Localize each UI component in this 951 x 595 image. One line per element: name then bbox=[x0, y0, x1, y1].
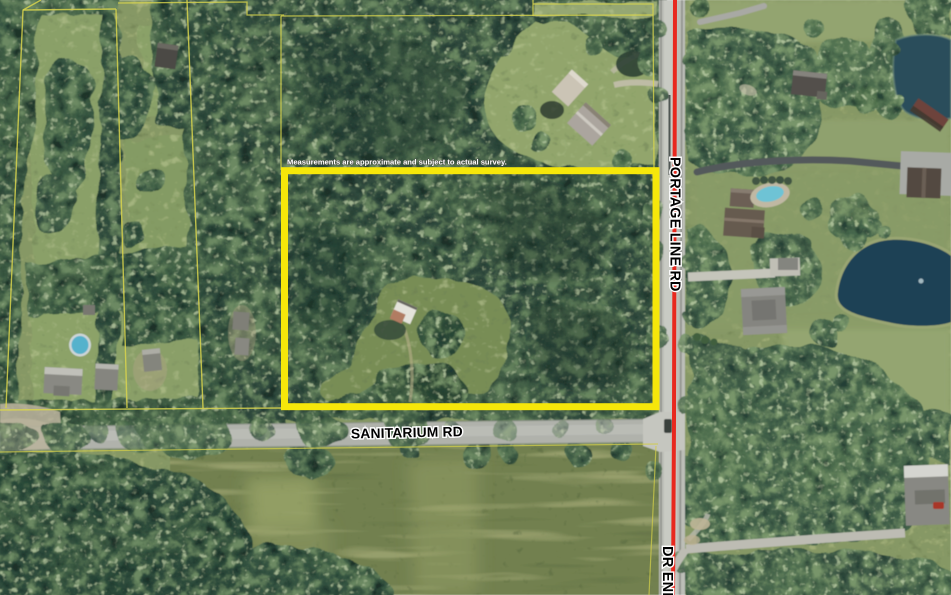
svg-text:DR ENI: DR ENI bbox=[659, 546, 675, 595]
svg-text:PORTAGE LINE RD: PORTAGE LINE RD bbox=[667, 157, 683, 292]
svg-text:SANITARIUM RD: SANITARIUM RD bbox=[351, 424, 463, 441]
svg-text:Measurements are approximate a: Measurements are approximate and subject… bbox=[287, 158, 507, 167]
